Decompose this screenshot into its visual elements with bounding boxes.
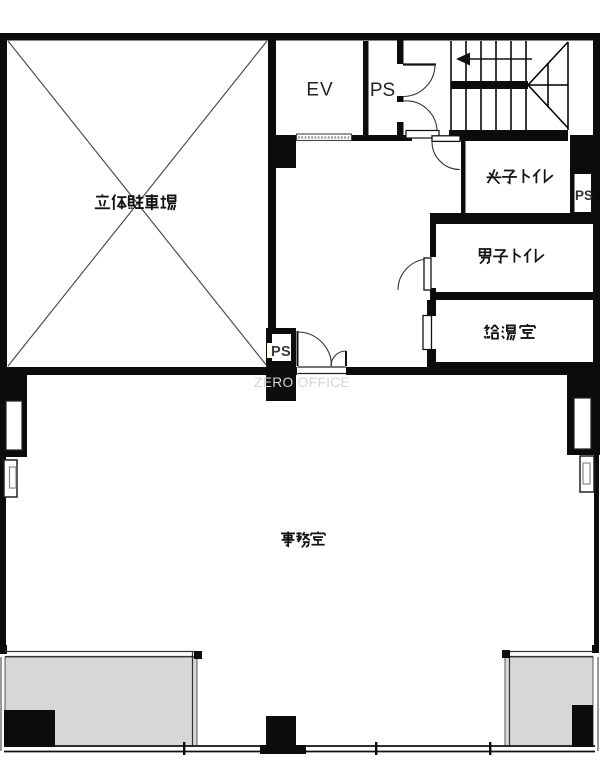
svg-text:PS: PS xyxy=(271,344,291,360)
svg-text:PS: PS xyxy=(370,80,395,101)
svg-text:PS: PS xyxy=(575,188,593,203)
svg-text:EV: EV xyxy=(306,80,333,101)
svg-text:ZERO OFFICE: ZERO OFFICE xyxy=(254,375,350,390)
